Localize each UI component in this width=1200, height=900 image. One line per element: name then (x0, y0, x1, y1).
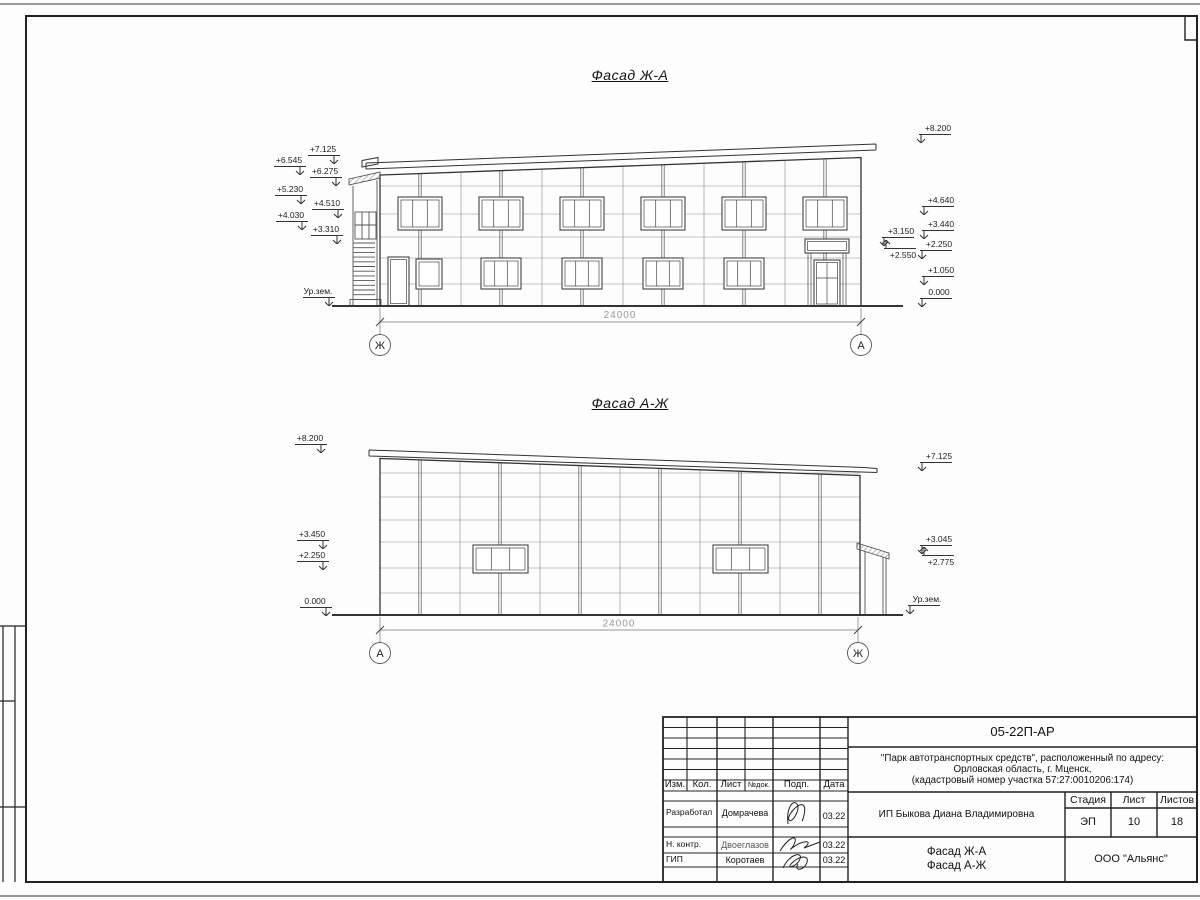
elevation-mark-label: Ур.зем. (910, 594, 944, 604)
tb-name-ncontrol: Двоеглазов (717, 838, 773, 852)
elevation-mark-label: 0.000 (922, 287, 956, 297)
elevation-mark-arrow (330, 178, 342, 186)
tb-project-line2: Орловская область, г. Мценск, (954, 764, 1092, 775)
tb-project-line1: "Парк автотранспортных средств", располо… (881, 753, 1164, 764)
elevation-mark-shelf (922, 555, 954, 556)
tb-sheet-title: Фасад Ж-А Фасад А-Ж (848, 837, 1065, 882)
elevation-mark-arrow (320, 608, 332, 616)
tb-sheet-label: Лист (1111, 792, 1157, 808)
elevation-mark-label: +4.510 (310, 198, 344, 208)
elevation-mark-arrow (294, 167, 306, 175)
tb-sheets-label: Листов (1157, 792, 1197, 808)
elevation-mark-label: +4.030 (274, 210, 308, 220)
elevation-mark-arrow (323, 298, 335, 306)
elevation-mark-arrow (904, 606, 916, 614)
elevation-mark-label: +3.450 (295, 529, 329, 539)
elevation-mark-arrow (315, 445, 327, 453)
tb-col-list: Лист (717, 780, 745, 791)
elevation-mark-label: +7.125 (922, 451, 956, 461)
tb-col-kol: Кол. (687, 780, 717, 791)
elevation-mark-arrow (916, 463, 928, 471)
elevation-mark-arrow (317, 541, 329, 549)
elevation-mark-shelf (884, 248, 916, 249)
tb-project-description: "Парк автотранспортных средств", располо… (850, 747, 1195, 792)
tb-sheet-value: 10 (1111, 808, 1157, 837)
tb-sheet-title-line2: Фасад А-Ж (927, 860, 986, 873)
tb-stage-label: Стадия (1065, 792, 1111, 808)
tb-name-gip: Коротаев (717, 853, 773, 867)
tb-role-ncontrol: Н. контр. (663, 838, 717, 852)
tb-role-developer: Разработал (663, 804, 717, 822)
tb-client: ИП Быкова Диана Владимировна (848, 792, 1065, 837)
elevation-mark-arrow (916, 251, 928, 259)
tb-stage-value: ЭП (1065, 808, 1111, 837)
elevation-mark-arrow (328, 156, 340, 164)
tb-name-developer: Домрачева (717, 804, 773, 822)
elevation-mark-arrow (331, 236, 343, 244)
elevation-mark-label: Ур.зем. (301, 286, 335, 296)
tb-sheets-value: 18 (1157, 808, 1197, 837)
elevation-mark-label: +2.250 (295, 550, 329, 560)
elevation-mark-arrow (916, 299, 928, 307)
elevation-mark-label: +6.275 (308, 166, 342, 176)
elevation-mark-arrow (918, 547, 930, 555)
tb-col-ndok: №док. (745, 780, 773, 791)
elevation-mark-arrow (918, 207, 930, 215)
elevation-mark-label: +8.200 (293, 433, 327, 443)
elevation-mark-arrow (918, 277, 930, 285)
tb-date-gip: 03.22 (820, 853, 848, 867)
elevation-mark-label: +3.045 (922, 534, 956, 544)
elevation-mark-label: +3.150 (884, 226, 918, 236)
tb-organization: ООО "Альянс" (1065, 837, 1197, 882)
elevation-mark-arrow (295, 196, 307, 204)
tb-date-ncontrol: 03.22 (820, 838, 848, 852)
tb-role-gip: ГИП (663, 853, 717, 867)
tb-project-line3: (кадастровый номер участка 57:27:0010206… (912, 775, 1134, 786)
elevation-mark-label: +5.230 (273, 184, 307, 194)
elevation-mark-label: +4.640 (924, 195, 958, 205)
elevation-mark-arrow (296, 222, 308, 230)
tb-sheet-title-line1: Фасад Ж-А (927, 846, 986, 859)
elevation-mark-label: +3.440 (924, 219, 958, 229)
elevation-mark-label: +2.550 (886, 250, 920, 260)
tb-col-podp: Подп. (773, 780, 820, 791)
tb-doc-number: 05-22П-АР (848, 717, 1197, 747)
elevation-mark-label: +7.125 (306, 144, 340, 154)
elevation-mark-arrow (332, 210, 344, 218)
tb-col-data: Дата (820, 780, 848, 791)
elevation-mark-label: +3.310 (309, 224, 343, 234)
elevation-mark-label: +2.775 (924, 557, 958, 567)
drawing-sheet: { "drawing": { "facade1": { "title": "Фа… (0, 0, 1200, 900)
elevation-mark-arrow (880, 240, 892, 248)
tb-col-izm: Изм. (663, 780, 687, 791)
elevation-mark-label: 0.000 (298, 596, 332, 606)
elevation-mark-label: +2.250 (922, 239, 956, 249)
elevation-mark-arrow (915, 135, 927, 143)
elevation-mark-arrow (317, 562, 329, 570)
elevation-mark-label: +1.050 (924, 265, 958, 275)
elevation-mark-label: +8.200 (921, 123, 955, 133)
elevation-mark-arrow (918, 231, 930, 239)
tb-date-developer: 03.22 (820, 809, 848, 823)
elevation-mark-label: +6.545 (272, 155, 306, 165)
